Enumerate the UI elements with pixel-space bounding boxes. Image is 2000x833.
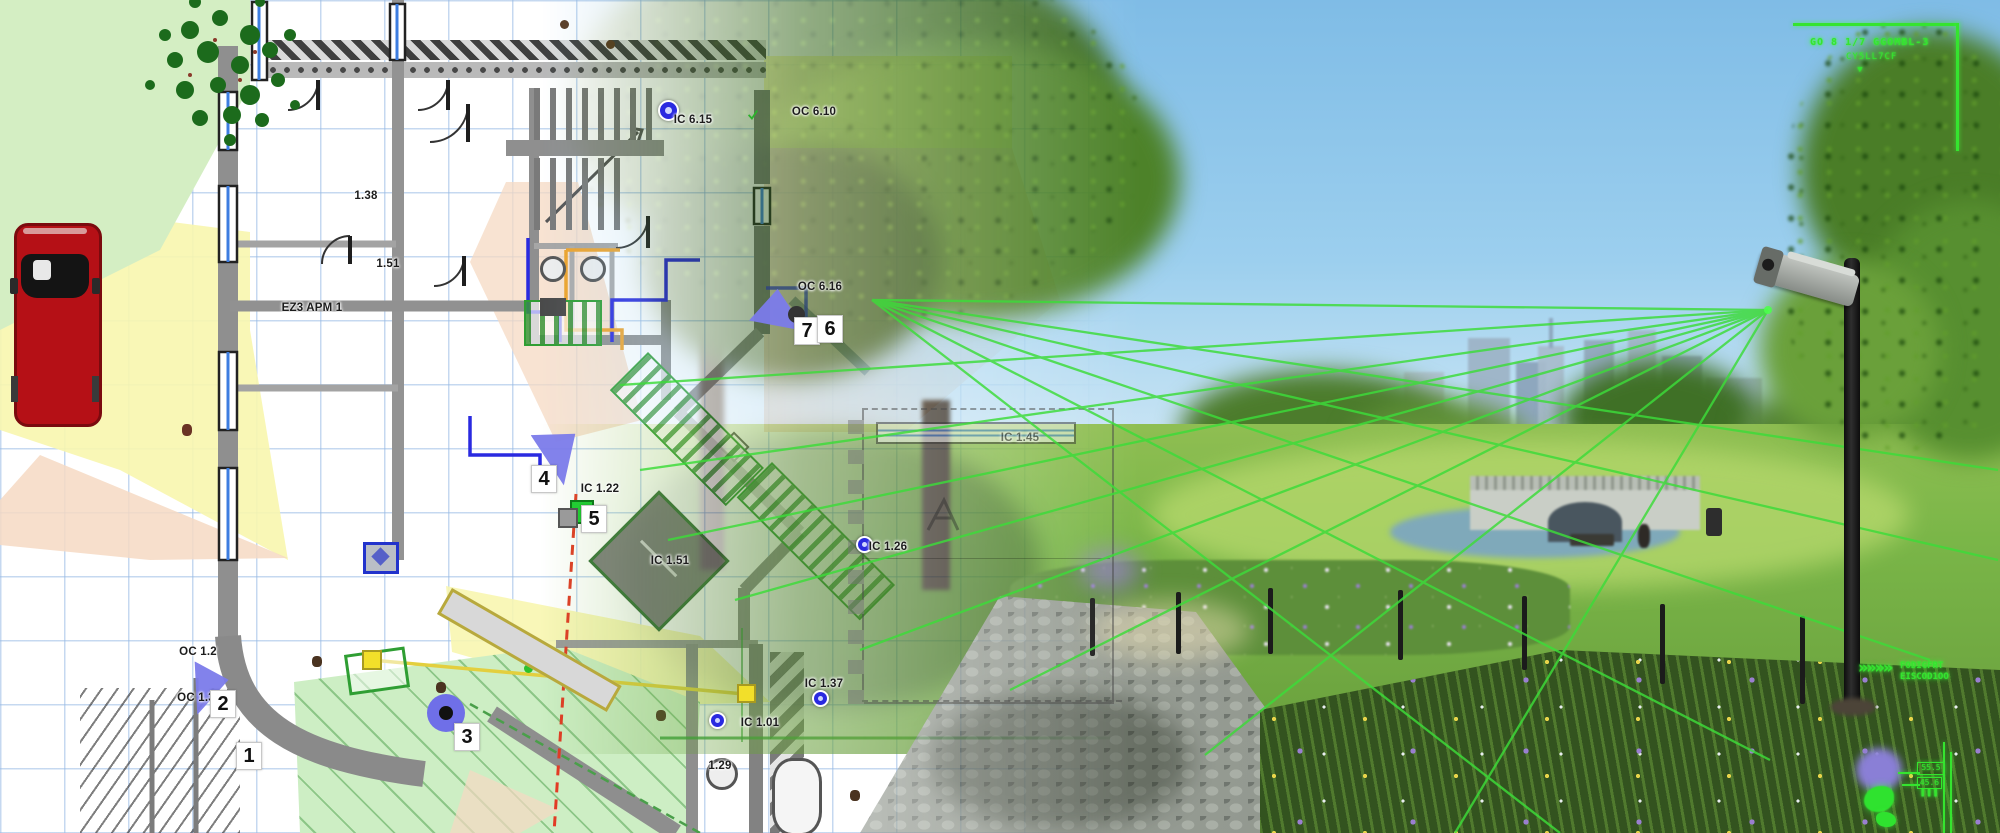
hud-value-box1: 55.5 xyxy=(1917,762,1945,775)
hud-leaf-icon xyxy=(1876,812,1896,827)
hud-tag-line2: EISCOD1OO xyxy=(1900,672,1949,682)
security-planning-composite: IC 6.15OC 6.10OC 6.161.381.51EZ3 APM 1IC… xyxy=(0,0,2000,833)
hud-bars-icon: ❚❚❚ xyxy=(1920,788,1939,798)
hud-readout-line1: GO 8 1/7 GGOMBL-3 xyxy=(1810,37,1929,48)
hud-chevrons-icon: »»»» xyxy=(1858,658,1891,678)
hud-readout-line2: CY5LL7CF xyxy=(1846,52,1897,62)
hud-tag-line1: FODIGFRT xyxy=(1900,661,1943,671)
hud-pointer-icon: ▾ xyxy=(1856,62,1864,77)
hud-leaf-icon xyxy=(1864,786,1894,812)
